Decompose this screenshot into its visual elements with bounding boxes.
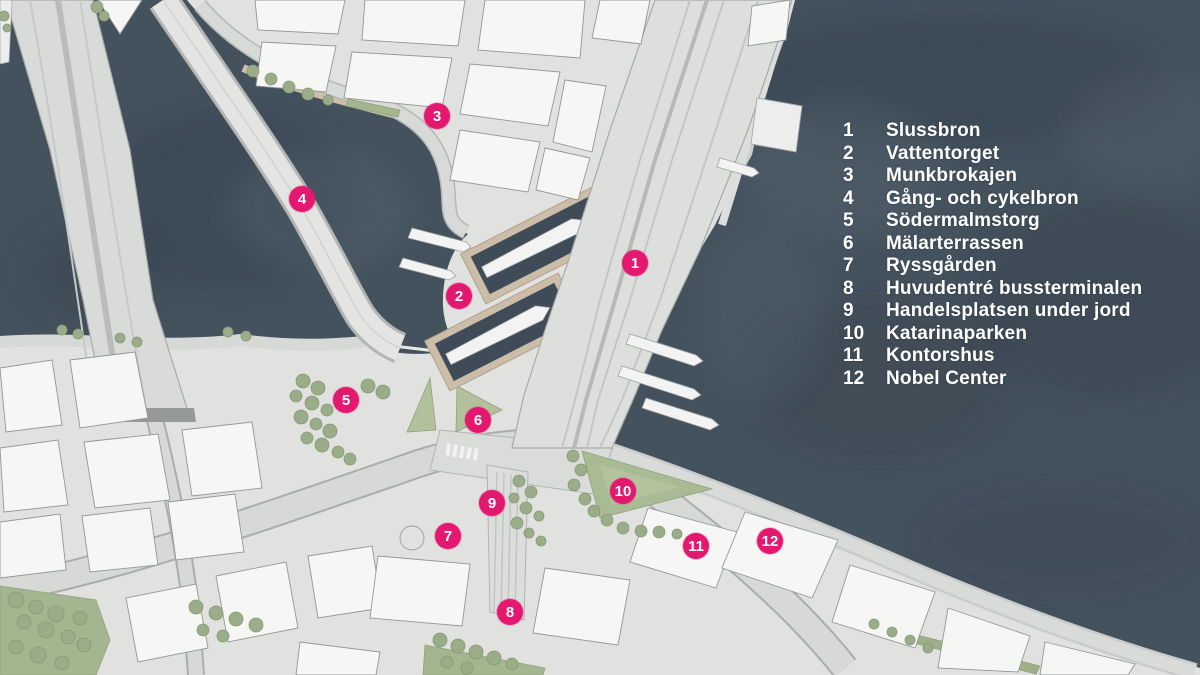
- map-marker-9[interactable]: 9: [479, 490, 505, 516]
- legend-item: 2Vattentorget: [843, 143, 1142, 166]
- legend-item-label: Kontorshus: [886, 345, 995, 367]
- legend-item-label: Munkbrokajen: [886, 165, 1017, 187]
- map-marker-7[interactable]: 7: [435, 523, 461, 549]
- legend-item: 6Mälarterrassen: [843, 233, 1142, 256]
- legend-item: 12Nobel Center: [843, 368, 1142, 391]
- legend-item-number: 4: [843, 188, 886, 210]
- legend: 1Slussbron 2Vattentorget 3Munkbrokajen 4…: [843, 120, 1142, 390]
- slussen-site-plan: 1 2 3 4 5 6 7 8 9 10 11 12 1Slussbron 2V…: [0, 0, 1200, 675]
- legend-item: 9Handelsplatsen under jord: [843, 300, 1142, 323]
- legend-item: 1Slussbron: [843, 120, 1142, 143]
- legend-item-label: Nobel Center: [886, 368, 1007, 390]
- legend-item: 3Munkbrokajen: [843, 165, 1142, 188]
- legend-item-label: Huvudentré bussterminalen: [886, 278, 1142, 300]
- legend-item: 5Södermalmstorg: [843, 210, 1142, 233]
- legend-item-number: 7: [843, 255, 886, 277]
- legend-item-label: Katarinaparken: [886, 323, 1027, 345]
- legend-item: 8Huvudentré bussterminalen: [843, 278, 1142, 301]
- legend-item-label: Gång- och cykelbron: [886, 188, 1079, 210]
- map-marker-1[interactable]: 1: [622, 250, 648, 276]
- legend-item-number: 12: [843, 368, 886, 390]
- legend-item-number: 5: [843, 210, 886, 232]
- legend-item-number: 2: [843, 143, 886, 165]
- legend-item-number: 10: [843, 323, 886, 345]
- legend-item-label: Vattentorget: [886, 143, 999, 165]
- legend-item-label: Slussbron: [886, 120, 981, 142]
- legend-item-number: 9: [843, 300, 886, 322]
- map-marker-6[interactable]: 6: [465, 407, 491, 433]
- legend-item: 7Ryssgården: [843, 255, 1142, 278]
- legend-item: 4Gång- och cykelbron: [843, 188, 1142, 211]
- map-marker-2[interactable]: 2: [446, 283, 472, 309]
- legend-item-number: 6: [843, 233, 886, 255]
- legend-item-label: Mälarterrassen: [886, 233, 1024, 255]
- legend-item-number: 11: [843, 345, 886, 367]
- map-marker-11[interactable]: 11: [683, 533, 709, 559]
- legend-item-number: 1: [843, 120, 886, 142]
- map-marker-8[interactable]: 8: [497, 599, 523, 625]
- map-marker-12[interactable]: 12: [757, 528, 783, 554]
- legend-item-label: Södermalmstorg: [886, 210, 1040, 232]
- map-marker-4[interactable]: 4: [289, 186, 315, 212]
- map-marker-10[interactable]: 10: [610, 478, 636, 504]
- legend-item: 11Kontorshus: [843, 345, 1142, 368]
- legend-item-label: Handelsplatsen under jord: [886, 300, 1131, 322]
- legend-item-number: 8: [843, 278, 886, 300]
- map-marker-3[interactable]: 3: [424, 103, 450, 129]
- map-marker-5[interactable]: 5: [333, 387, 359, 413]
- legend-item-label: Ryssgården: [886, 255, 997, 277]
- legend-item: 10Katarinaparken: [843, 323, 1142, 346]
- legend-item-number: 3: [843, 165, 886, 187]
